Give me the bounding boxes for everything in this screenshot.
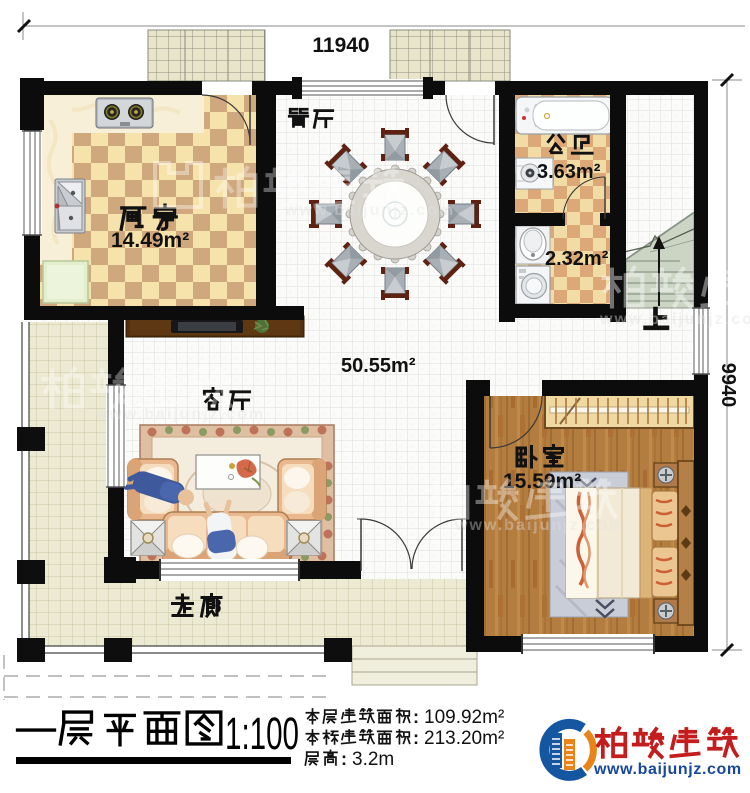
svg-text:3.63m²: 3.63m² (537, 161, 601, 183)
svg-text:www.baijunjz.com: www.baijunjz.com (94, 406, 265, 423)
svg-text::: : (413, 707, 419, 727)
svg-text:www.baijunjz.com: www.baijunjz.com (593, 761, 742, 778)
svg-text:www.baijunjz.com: www.baijunjz.com (284, 202, 455, 219)
svg-text:213.20m²: 213.20m² (424, 728, 504, 749)
svg-text:9940: 9940 (717, 363, 739, 408)
svg-text:50.55m²: 50.55m² (341, 355, 416, 377)
svg-text::: : (413, 728, 419, 748)
svg-text:11940: 11940 (312, 34, 369, 57)
svg-text:14.49m²: 14.49m² (111, 229, 189, 252)
svg-text::: : (341, 749, 347, 769)
svg-text:www.baijunjz.com: www.baijunjz.com (454, 517, 625, 534)
svg-text:2.32m²: 2.32m² (545, 248, 609, 270)
svg-text:3.2m: 3.2m (352, 749, 394, 770)
svg-text:1:100: 1:100 (225, 708, 299, 759)
svg-text:109.92m²: 109.92m² (424, 707, 504, 728)
svg-text:www.baijunjz.co: www.baijunjz.co (599, 311, 750, 328)
